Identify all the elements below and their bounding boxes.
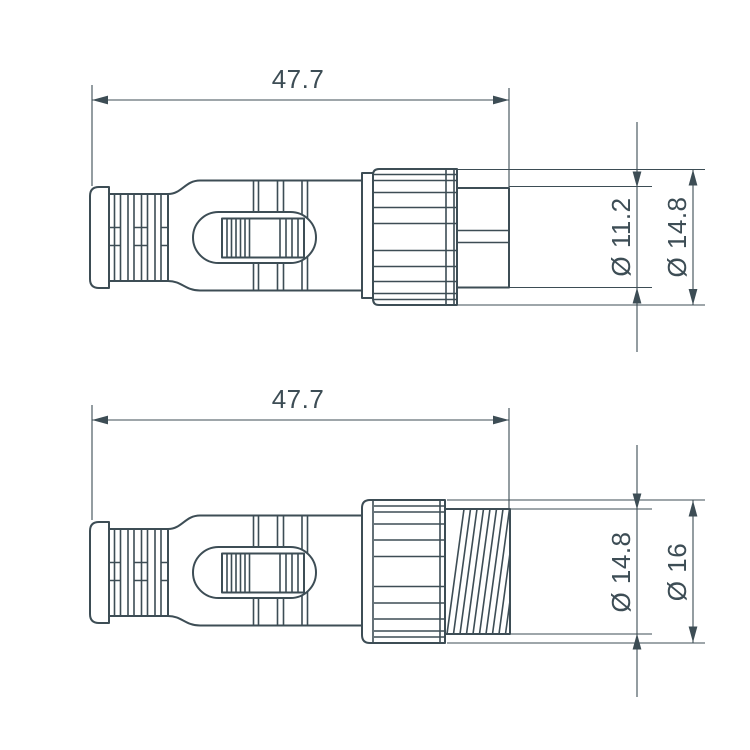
- dim-dia-nut-top-label: Ø 14.8: [662, 196, 692, 277]
- dim-dia-thread: Ø 14.8: [510, 445, 652, 697]
- dim-dia-thread-label: Ø 14.8: [606, 531, 636, 612]
- dim-length-top-label: 47.7: [272, 64, 325, 94]
- technical-drawing-page: 47.7 Ø 11.2 Ø 14.8: [0, 0, 750, 750]
- view-female-connector: 47.7 Ø 14.8 Ø 16: [90, 384, 705, 697]
- dim-length-bottom: 47.7: [92, 384, 509, 520]
- plug-tip: [457, 188, 509, 288]
- knurled-nut: [373, 169, 457, 305]
- coupling-ring: [362, 500, 445, 643]
- dim-dia-tip: Ø 11.2: [509, 122, 652, 352]
- dim-length-bottom-label: 47.7: [272, 384, 325, 414]
- dim-dia-ring-label: Ø 16: [662, 543, 692, 601]
- technical-drawing: 47.7 Ø 11.2 Ø 14.8: [0, 0, 750, 750]
- dim-dia-tip-label: Ø 11.2: [606, 197, 636, 276]
- flange: [362, 173, 373, 298]
- view-male-connector: 47.7 Ø 11.2 Ø 14.8: [90, 64, 705, 352]
